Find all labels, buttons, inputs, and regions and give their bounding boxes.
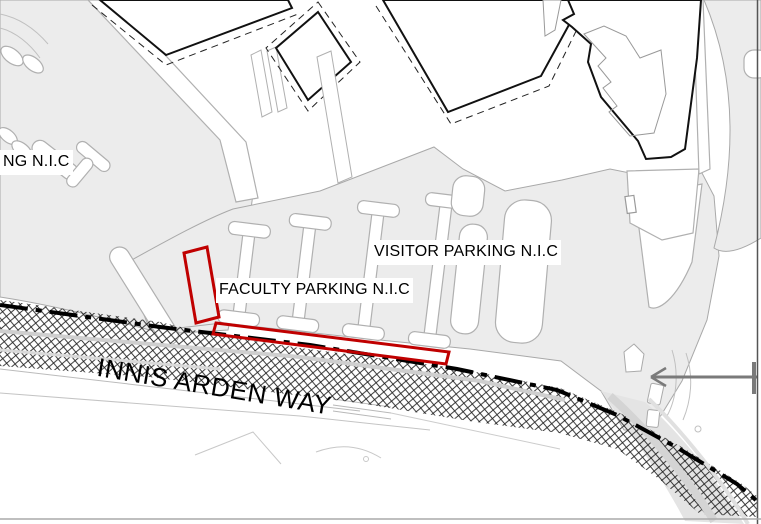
visitor-parking-label: VISITOR PARKING N.I.C [371,240,561,265]
faculty-parking-label: FACULTY PARKING N.I.C [216,278,413,303]
left-parking-label: NG N.I.C [0,150,73,175]
site-plan: NG N.I.C VISITOR PARKING N.I.C FACULTY P… [0,0,761,524]
building-outline-4 [563,0,701,159]
building-outline-2 [276,12,351,100]
